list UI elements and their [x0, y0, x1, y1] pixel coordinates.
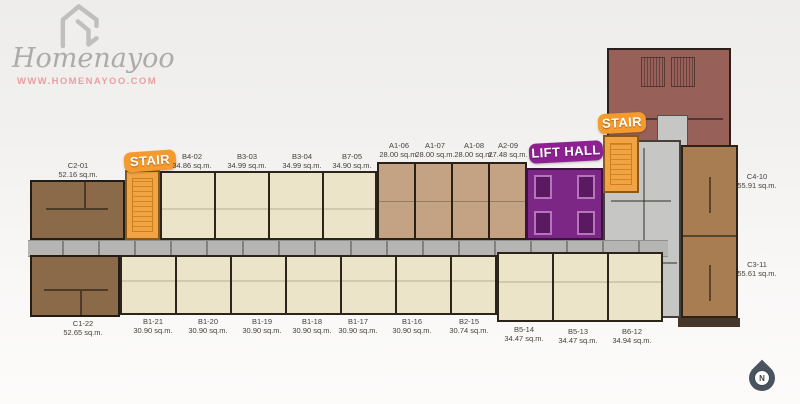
- unit-area: 52.65 sq.m.: [47, 328, 119, 337]
- lift-car: [534, 211, 552, 235]
- unit-area: 27.48 sq.m.: [472, 150, 544, 159]
- unit-area: 55.91 sq.m.: [721, 181, 793, 190]
- unit-id: C2-01: [42, 161, 114, 170]
- unit-wall: [709, 265, 711, 301]
- unit-divider: [683, 235, 736, 237]
- floor-plan-page: Homenayoo WWW.HOMENAYOO.COM: [0, 0, 800, 404]
- unit-row-a1-a2: [377, 162, 527, 240]
- unit-area: 52.16 sq.m.: [42, 170, 114, 179]
- unit-row-b5-b6: [497, 252, 663, 322]
- unit-area: 34.94 sq.m.: [596, 336, 668, 345]
- house-logo-icon: [48, 2, 106, 48]
- wing-stair-hatch: [641, 57, 665, 87]
- unit-label: B6-12 34.94 sq.m.: [596, 327, 668, 345]
- unit-id: C1-22: [47, 319, 119, 328]
- lift-car: [577, 175, 595, 199]
- unit-wall: [709, 177, 711, 213]
- site-logo: Homenayoo WWW.HOMENAYOO.COM: [0, 0, 170, 95]
- core-wall: [643, 148, 645, 248]
- stair-treads: [610, 143, 632, 185]
- unit-wall: [84, 182, 86, 208]
- lift-hall-block: [526, 168, 603, 240]
- unit-id: A2-09: [472, 141, 544, 150]
- core-wall: [611, 200, 671, 202]
- base-wall: [678, 318, 740, 327]
- unit-label: C3-11 55.61 sq.m.: [721, 260, 793, 278]
- unit-id: B6-12: [596, 327, 668, 336]
- unit-id: C4-10: [721, 172, 793, 181]
- brand-name: Homenayoo: [12, 44, 162, 74]
- stair-left-block: [125, 170, 160, 240]
- unit-block-c4-10-c3-11: [681, 145, 738, 318]
- stair-treads: [132, 178, 153, 232]
- unit-area: 55.61 sq.m.: [721, 269, 793, 278]
- unit-wall: [46, 208, 108, 210]
- north-compass-icon: N: [749, 365, 775, 391]
- unit-wall: [80, 291, 82, 317]
- stair-right-block: [603, 135, 639, 193]
- unit-label: C1-22 52.65 sq.m.: [47, 319, 119, 337]
- unit-id: C3-11: [721, 260, 793, 269]
- unit-area: 34.90 sq.m.: [316, 161, 388, 170]
- unit-row-b1-b2: [120, 255, 497, 315]
- stair-right-badge: STAIR: [598, 112, 647, 134]
- lift-car: [577, 211, 595, 235]
- lift-car: [534, 175, 552, 199]
- unit-label: C2-01 52.16 sq.m.: [42, 161, 114, 179]
- unit-label: A2-09 27.48 sq.m.: [472, 141, 544, 159]
- unit-block-c1-22: [30, 255, 120, 317]
- brand-url: WWW.HOMENAYOO.COM: [10, 76, 164, 87]
- compass-north-label: N: [754, 370, 770, 386]
- unit-block-c2-01: [30, 180, 125, 240]
- unit-wall: [44, 289, 108, 291]
- unit-label: C4-10 55.91 sq.m.: [721, 172, 793, 190]
- unit-row-b4-b7: [160, 171, 377, 240]
- wing-stair-hatch: [671, 57, 695, 87]
